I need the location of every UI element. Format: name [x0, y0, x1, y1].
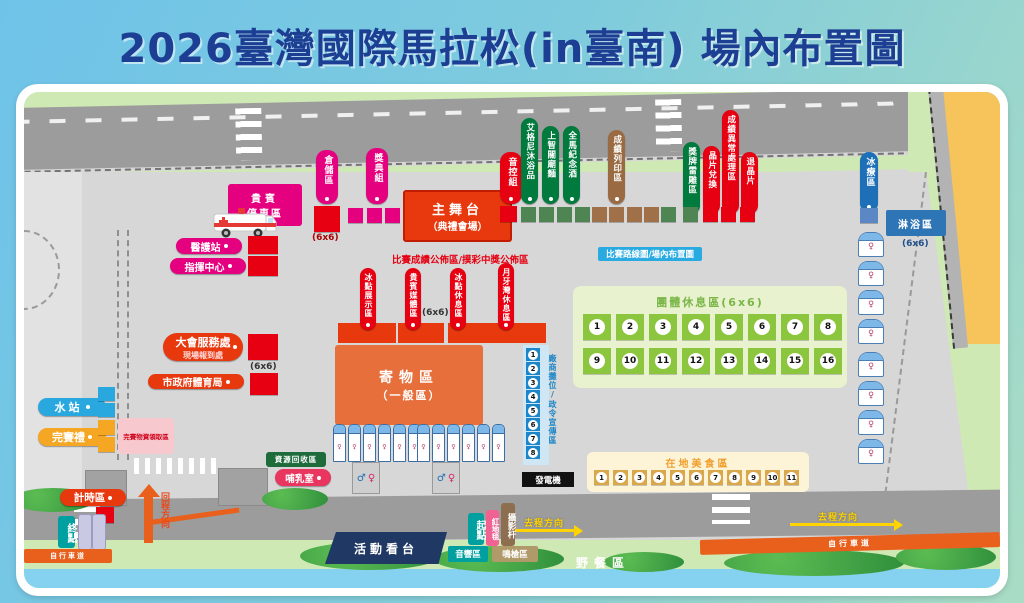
generator-label: 發電機: [535, 474, 561, 486]
booth-tent: [683, 207, 698, 222]
portable-toilet-icon: ♀: [417, 424, 430, 462]
chip-return-pill: 退晶片: [741, 152, 758, 214]
awards-tent: [385, 208, 400, 223]
shower-area-label: 淋浴區: [898, 216, 934, 231]
rest-slot: 10: [616, 348, 644, 374]
portable-toilet-icon: ♀: [393, 424, 406, 462]
shower-area: 淋浴區: [886, 210, 946, 236]
chip-exchange-label: 晶片兌換: [707, 151, 716, 214]
portable-toilets-row: ♀ ♀ ♀ ♀ ♀ ♀: [333, 424, 421, 462]
food-stall: 5: [670, 470, 685, 485]
tent-size-label: (6x6): [250, 362, 277, 372]
bush-icon: [262, 488, 328, 510]
medal-engrave-pill: 獎牌雷雕區: [683, 142, 700, 214]
pointer-dot-icon: [228, 264, 232, 268]
slot-number: 9: [589, 353, 605, 369]
pointer-dot-icon: [86, 405, 90, 409]
food-stall: 9: [746, 470, 761, 485]
pointer-dot-icon: [456, 323, 460, 327]
vendor-stall: 5: [526, 404, 540, 417]
food-stalls-row: 1234567891011: [594, 470, 799, 485]
food-stall: 3: [632, 470, 647, 485]
pointer-dot-icon: [375, 197, 379, 201]
finish-line-label: 終點: [58, 516, 75, 548]
route-map-board-label: 比賽路線圖/場內布置圖: [598, 247, 702, 261]
stall-number: 7: [528, 434, 538, 444]
finisher-gift-tent: [98, 437, 115, 452]
rest-slot: 8: [814, 314, 842, 340]
rest-slots-row: 910111213141516: [583, 348, 842, 374]
portable-toilet-icon: ♀: [858, 439, 884, 464]
portable-toilets-column: ♀ ♀ ♀ ♀: [858, 232, 884, 344]
portable-toilet-icon: ♀: [333, 424, 346, 462]
pointer-dot-icon: [366, 323, 370, 327]
service-desk-pill: 大會服務處 現場報到處: [163, 333, 243, 361]
vendor-strip-label: 廠商攤位/政令宣傳區: [548, 354, 556, 445]
ice-therapy-label: 冰療區: [865, 157, 874, 212]
recycle-area-label: 資源回收區: [275, 454, 318, 465]
restroom-icon: ♂♀: [352, 462, 380, 494]
stall-number: 5: [672, 472, 683, 483]
rest-slot: 16: [814, 348, 842, 374]
stall-number: 5: [528, 406, 538, 416]
portable-toilet-icon: ♀: [492, 424, 505, 462]
medal-engrave-label: 獎牌雷雕區: [687, 147, 696, 214]
rest-slot: 9: [583, 348, 611, 374]
portable-toilet-icon: ♀: [858, 290, 884, 315]
rest-slot: 14: [748, 348, 776, 374]
vendor-stall: 3: [526, 376, 540, 389]
booth-tent: [592, 207, 607, 222]
slot-number: 5: [721, 319, 737, 335]
stall-number: 6: [528, 420, 538, 430]
portable-toilet-icon: ♀: [858, 261, 884, 286]
gate-marker: [78, 514, 92, 550]
pointer-dot-icon: [549, 197, 553, 201]
sports-bureau-pill: 市政府體育局: [148, 374, 244, 389]
main-stage-label: 主舞台: [432, 199, 483, 218]
outbound-arrow-icon: [512, 529, 574, 532]
booth-tent: [703, 207, 718, 222]
portable-toilets-row: ♀ ♀ ♀ ♀ ♀ ♀: [417, 424, 505, 462]
booth-tent: [627, 207, 642, 222]
awards-tent: [348, 208, 363, 223]
pointer-dot-icon: [411, 323, 415, 327]
venue-map: 貴賓 停車區 醫護站 指揮中心: [24, 92, 1000, 588]
storage-area-pill: 倉儲區: [316, 150, 338, 204]
food-stall: 8: [727, 470, 742, 485]
stall-number: 8: [528, 448, 538, 458]
pointer-dot-icon: [570, 197, 574, 201]
awards-tent: [367, 208, 382, 223]
booth-tent: [644, 207, 659, 222]
shower-size-label: (6x6): [902, 239, 929, 249]
booth-tent: [740, 207, 755, 222]
stall-number: 10: [767, 472, 778, 483]
pointer-dot-icon: [615, 197, 619, 201]
grandstand-label: 活動看台: [354, 540, 418, 557]
goods-pickup-label: 完賽物資領取區: [123, 431, 169, 441]
sponsor-pill: 艾格尼沐浴品: [521, 118, 538, 204]
pointer-dot-icon: [509, 197, 513, 201]
rest-slot: 3: [649, 314, 677, 340]
stall-number: 1: [528, 350, 538, 360]
portable-toilet-icon: ♀: [858, 410, 884, 435]
portable-toilet-icon: ♀: [858, 352, 884, 377]
stall-number: 3: [528, 378, 538, 388]
rest-slot: 6: [748, 314, 776, 340]
crosswalk-icon: [712, 494, 750, 524]
storage-tent: [314, 206, 340, 232]
restroom-icon: ♂♀: [432, 462, 460, 494]
medical-station-pill: 醫護站: [176, 238, 242, 254]
baggage-sublabel: （一般區）: [377, 387, 442, 403]
portable-toilet-icon: ♀: [858, 232, 884, 257]
sports-bureau-tent: [250, 373, 278, 395]
pointer-dot-icon: [226, 380, 230, 384]
pointer-dot-icon: [325, 197, 329, 201]
return-direction-label: 回程方向: [159, 492, 168, 528]
vip-media-pill: 貴賓媒體區: [405, 268, 421, 330]
vendor-stall: 2: [526, 362, 540, 375]
slot-number: 1: [589, 319, 605, 335]
timing-area-label: 計時區: [74, 490, 106, 505]
command-center-pill: 指揮中心: [170, 258, 246, 274]
gun-start-area-label: 鳴槍區: [502, 548, 528, 560]
main-stage: 主舞台 （典禮會場）: [403, 190, 512, 242]
portable-toilet-icon: ♀: [477, 424, 490, 462]
baggage-label: 寄物區: [379, 367, 439, 387]
chip-return-label: 退晶片: [745, 157, 754, 214]
slot-number: 10: [622, 353, 638, 369]
moon-bay-rest-label: 月牙灣休息區: [502, 268, 510, 330]
portable-toilet-icon: ♀: [858, 381, 884, 406]
vendor-stalls: 12345678: [526, 348, 540, 459]
nursing-room-label: 哺乳室: [285, 471, 314, 485]
grandstand: 活動看台: [325, 532, 447, 564]
portable-toilet-icon: ♀: [378, 424, 391, 462]
booth-size-label: (6x6): [422, 308, 449, 318]
slot-number: 11: [655, 353, 671, 369]
sound-control-tent: [500, 206, 517, 222]
portable-toilet-icon: ♀: [363, 424, 376, 462]
rest-slot: 13: [715, 348, 743, 374]
ice-therapy-tent: [860, 208, 878, 223]
ice-rest-label: 冰點休息區: [454, 273, 462, 330]
abnormal-results-label: 成績異常處理區: [726, 115, 735, 214]
water-station-tent: [98, 403, 115, 417]
results-print-pill: 成績列印區: [608, 130, 625, 204]
sound-area-label: 音響區: [455, 548, 481, 560]
water-station-label: 水站: [55, 399, 83, 415]
booth-base: [398, 323, 444, 343]
goods-pickup-area: 完賽物資領取區: [118, 418, 174, 454]
local-food-area-title: 在地美食區: [587, 455, 809, 470]
service-desk-label: 大會服務處: [176, 334, 231, 350]
vip-media-label: 貴賓媒體區: [409, 273, 417, 330]
ice-display-pill: 冰點展示區: [360, 268, 376, 330]
stall-number: 4: [528, 392, 538, 402]
recycle-area: 資源回收區: [266, 452, 326, 467]
command-center-label: 指揮中心: [185, 259, 225, 274]
slot-number: 7: [787, 319, 803, 335]
abnormal-results-pill: 成績異常處理區: [722, 110, 739, 214]
water-station-tent: [98, 387, 115, 401]
food-stall: 7: [708, 470, 723, 485]
gate-marker: [92, 514, 106, 550]
tent-size-label: (6x6): [312, 233, 339, 243]
red-carpet-label: 紅地毯: [486, 510, 499, 546]
outbound-direction-label: 去程方向: [524, 516, 564, 529]
results-print-label: 成績列印區: [612, 135, 621, 204]
service-desk-tent: [248, 334, 278, 360]
slot-number: 14: [754, 353, 770, 369]
food-stall: 10: [765, 470, 780, 485]
rest-slot: 7: [781, 314, 809, 340]
portable-toilets-column: ♀ ♀ ♀ ♀: [858, 352, 884, 464]
chip-exchange-pill: 晶片兌換: [703, 146, 720, 214]
finisher-gift-tent: [98, 420, 115, 435]
vip-parking-label: 貴賓: [251, 190, 279, 205]
main-stage-sublabel: （典禮會場）: [428, 218, 488, 233]
slot-number: 16: [820, 353, 836, 369]
outbound-arrow-icon: [790, 523, 894, 526]
pointer-dot-icon: [233, 345, 237, 349]
rest-slots-row: 12345678: [583, 314, 842, 340]
ice-display-label: 冰點展示區: [364, 273, 372, 330]
rest-slot: 15: [781, 348, 809, 374]
stall-number: 9: [748, 472, 759, 483]
awards-team-pill: 獎典組: [366, 148, 388, 204]
timing-area-pill: 計時區: [60, 489, 126, 506]
portable-toilet-icon: ♀: [432, 424, 445, 462]
stall-number: 8: [729, 472, 740, 483]
rest-slot: 1: [583, 314, 611, 340]
portable-toilet-icon: ♀: [462, 424, 475, 462]
slot-number: 12: [688, 353, 704, 369]
venue-map-poster: 2026臺灣國際馬拉松(in臺南) 場內布置圖: [0, 0, 1024, 603]
vendor-stall: 1: [526, 348, 540, 361]
stall-number: 4: [653, 472, 664, 483]
photo-pole-label: 攝影杆: [501, 503, 515, 546]
pointer-dot-icon: [504, 323, 508, 327]
start-line-label: 起點: [468, 513, 484, 545]
portable-toilet-icon: ♀: [447, 424, 460, 462]
sound-area-box: 音響區: [448, 546, 488, 562]
page-title: 2026臺灣國際馬拉松(in臺南) 場內布置圖: [0, 16, 1024, 74]
nursing-room-pill: 哺乳室: [275, 469, 331, 486]
pointer-dot-icon: [108, 496, 112, 500]
slot-number: 4: [688, 319, 704, 335]
ice-therapy-pill: 冰療區: [860, 152, 878, 212]
portable-toilet-icon: ♀: [858, 319, 884, 344]
outbound-direction-label: 去程方向: [818, 510, 858, 523]
stall-number: 6: [691, 472, 702, 483]
crosswalk-icon: [235, 108, 262, 161]
stall-number: 3: [634, 472, 645, 483]
booth-tent: [661, 207, 676, 222]
booth-tent: [557, 207, 572, 222]
command-center-tent: [248, 256, 278, 276]
rest-slot: 2: [616, 314, 644, 340]
building: [218, 468, 268, 506]
bush-icon: [724, 550, 904, 576]
sponsor-label: 艾格尼沐浴品: [525, 123, 534, 204]
slot-number: 15: [787, 353, 803, 369]
checkin-label: 現場報到處: [183, 350, 223, 361]
sponsor-label: 全馬紀念酒: [567, 131, 576, 204]
gun-start-area-box: 鳴槍區: [492, 546, 538, 562]
baggage-area: 寄物區 （一般區）: [335, 345, 483, 425]
sponsor-pill: 全馬紀念酒: [563, 126, 580, 204]
portable-toilet-icon: ♀: [348, 424, 361, 462]
food-stall: 4: [651, 470, 666, 485]
bike-lane-bar: 自行車道: [24, 549, 112, 563]
finisher-gift-label: 完賽禮: [52, 429, 85, 445]
medical-station-label: 醫護站: [191, 239, 221, 254]
west-lane: [24, 172, 82, 504]
moon-bay-rest-pill: 月牙灣休息區: [498, 263, 514, 330]
sports-bureau-label: 市政府體育局: [163, 374, 223, 389]
stall-number: 1: [596, 472, 607, 483]
bike-lane-label: 自行車道: [828, 537, 872, 549]
vendor-stall: 6: [526, 418, 540, 431]
pointer-dot-icon: [88, 435, 92, 439]
food-stall: 2: [613, 470, 628, 485]
sponsor-pill: 上智關廟麵: [542, 126, 559, 204]
stall-number: 11: [786, 472, 797, 483]
sound-control-pill: 音控組: [500, 152, 522, 204]
slot-number: 6: [754, 319, 770, 335]
map-frame: 貴賓 停車區 醫護站 指揮中心: [16, 84, 1008, 596]
bike-lane-label: 自行車道: [50, 551, 86, 561]
pointer-dot-icon: [224, 244, 228, 248]
booth-tent: [539, 207, 554, 222]
booth-tent: [575, 207, 590, 222]
booth-tent: [521, 207, 536, 222]
slot-number: 13: [721, 353, 737, 369]
stall-number: 2: [615, 472, 626, 483]
vendor-stall: 4: [526, 390, 540, 403]
vendor-stall: 7: [526, 432, 540, 445]
rest-slot: 4: [682, 314, 710, 340]
crosswalk-icon: [655, 99, 682, 152]
food-stall: 1: [594, 470, 609, 485]
ambulance-icon: [212, 206, 278, 240]
food-stall: 11: [784, 470, 799, 485]
medical-station-tent: [248, 236, 278, 254]
vendor-stall: 8: [526, 446, 540, 459]
pointer-dot-icon: [317, 476, 321, 480]
slot-number: 2: [622, 319, 638, 335]
stall-number: 7: [710, 472, 721, 483]
stall-number: 2: [528, 364, 538, 374]
crosswalk-icon: [134, 458, 218, 474]
rest-slot: 5: [715, 314, 743, 340]
booth-tent: [609, 207, 624, 222]
rest-slot: 12: [682, 348, 710, 374]
pointer-dot-icon: [528, 197, 532, 201]
group-rest-area-title: 團體休息區(6x6): [573, 294, 847, 310]
water-station-pill: 水站: [38, 398, 106, 416]
sponsor-label: 上智關廟麵: [546, 131, 555, 204]
ice-rest-pill: 冰點休息區: [450, 268, 466, 330]
finisher-gift-pill: 完賽禮: [38, 428, 106, 446]
generator-box: 發電機: [522, 472, 574, 487]
slot-number: 8: [820, 319, 836, 335]
booth-tent: [721, 207, 736, 222]
slot-number: 3: [655, 319, 671, 335]
picnic-area-label: 野餐區: [576, 554, 630, 571]
rest-slot: 11: [649, 348, 677, 374]
food-stall: 6: [689, 470, 704, 485]
